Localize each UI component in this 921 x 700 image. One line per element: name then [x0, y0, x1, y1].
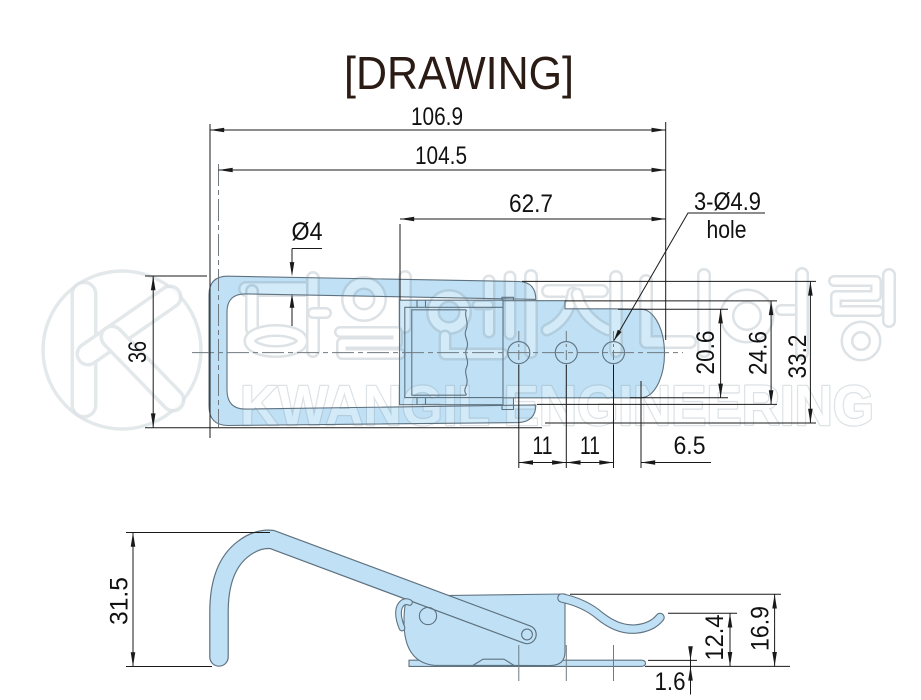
- svg-text:[DRAWING]: [DRAWING]: [344, 47, 574, 99]
- svg-text:1.6: 1.6: [655, 668, 686, 696]
- svg-text:106.9: 106.9: [411, 103, 463, 131]
- svg-text:104.5: 104.5: [415, 142, 467, 170]
- svg-text:11: 11: [580, 432, 600, 460]
- svg-text:12.4: 12.4: [701, 614, 729, 660]
- svg-text:6.5: 6.5: [674, 432, 706, 460]
- svg-text:hole: hole: [707, 216, 747, 244]
- svg-text:31.5: 31.5: [106, 577, 134, 625]
- svg-text:20.6: 20.6: [692, 331, 720, 375]
- svg-text:11: 11: [533, 432, 553, 460]
- svg-text:Ø4: Ø4: [292, 218, 323, 246]
- svg-text:KWANGIL ENGINEERING: KWANGIL ENGINEERING: [240, 374, 874, 438]
- svg-text:33.2: 33.2: [784, 335, 812, 379]
- svg-text:36: 36: [124, 341, 152, 363]
- svg-text:62.7: 62.7: [509, 190, 553, 218]
- svg-text:24.6: 24.6: [745, 331, 773, 375]
- svg-text:16.9: 16.9: [747, 606, 775, 651]
- svg-text:3-Ø4.9: 3-Ø4.9: [694, 188, 761, 216]
